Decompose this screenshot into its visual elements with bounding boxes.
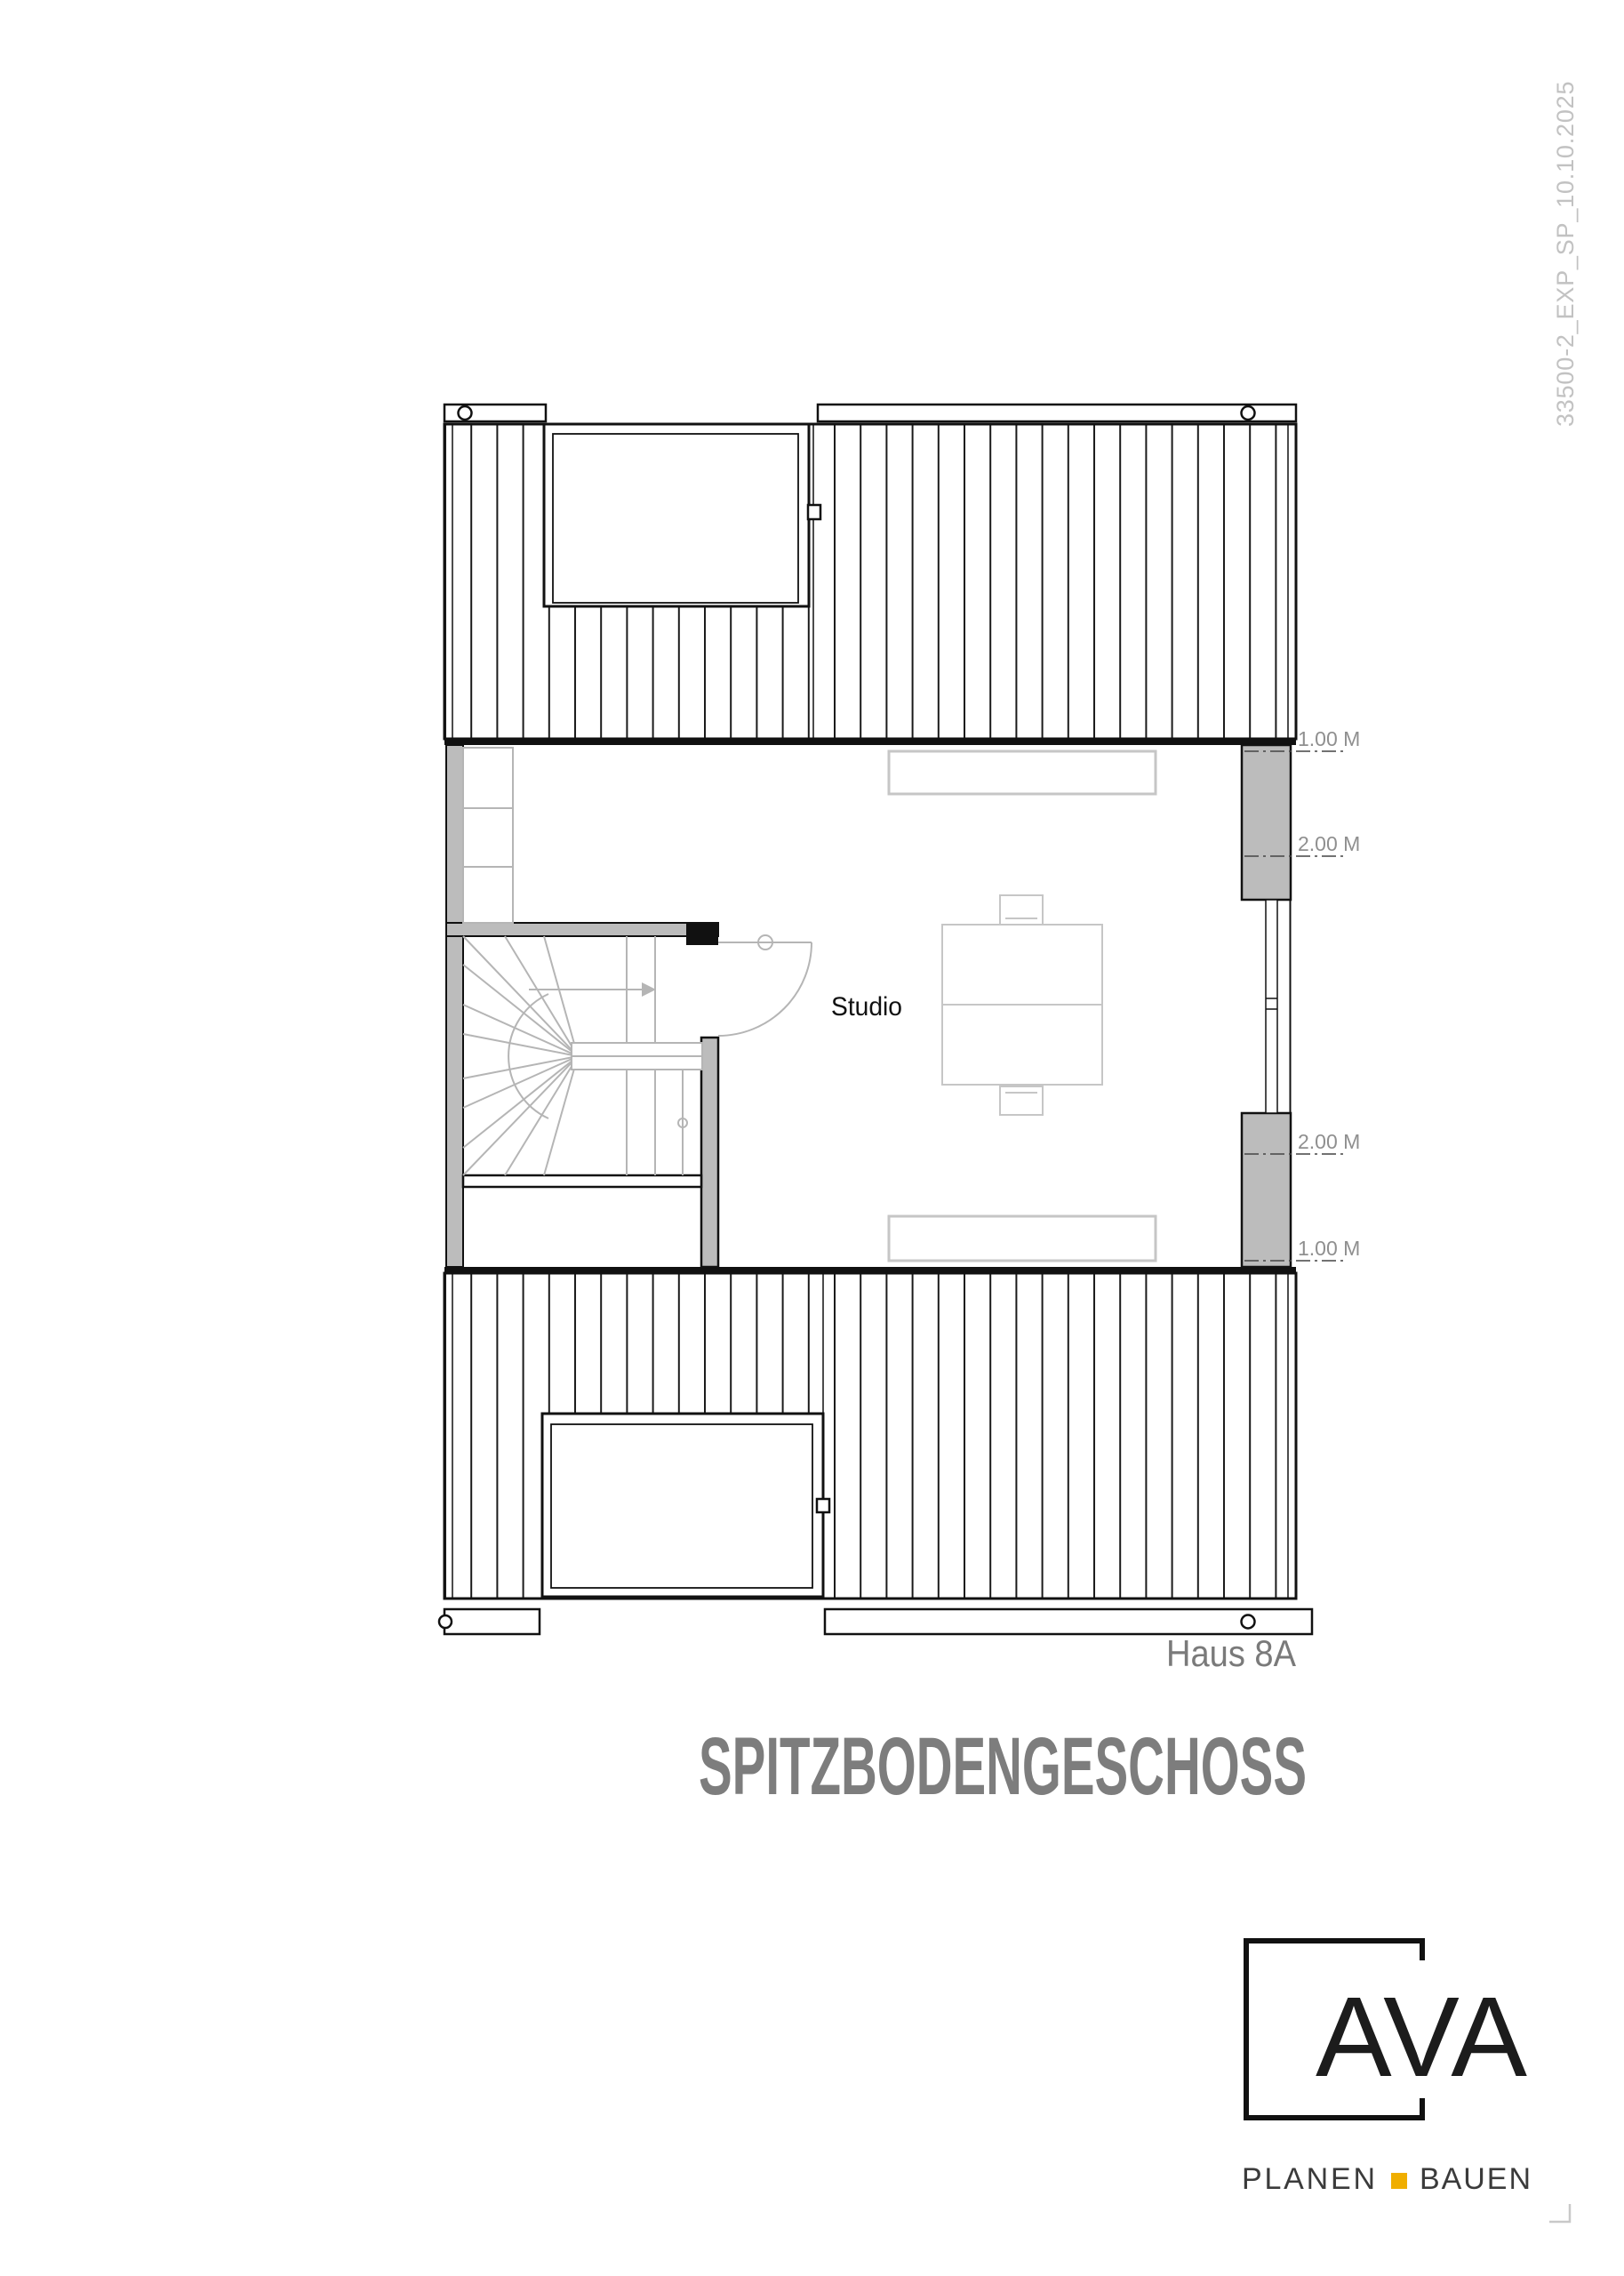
studio-door [718, 935, 812, 1036]
wall-left [446, 745, 463, 1267]
roof-vent-box-icon [817, 1499, 829, 1512]
roof-band-bottom [439, 1273, 1312, 1634]
vent-pipe-icon [459, 406, 472, 420]
sideboard-top [889, 751, 1156, 794]
gutter-end-icon [439, 1615, 452, 1628]
roof-cap-strip-bottom-left [444, 1609, 540, 1634]
logo-tagline-bauen: BAUEN [1420, 2162, 1538, 2196]
stair-walkline-arc [508, 994, 548, 1118]
wall-stair-right [701, 1038, 718, 1267]
chair-bottom [1000, 1086, 1043, 1115]
roof-cap-strip-top-right [818, 405, 1296, 421]
wall-line-bottom [444, 1267, 1296, 1273]
height-label: 2.00 M [1298, 832, 1360, 855]
roof-band-top [444, 405, 1296, 739]
height-label: 2.00 M [1298, 1130, 1360, 1153]
height-label: 1.00 M [1298, 1237, 1360, 1260]
knee-wall-lower [1242, 1113, 1291, 1267]
door-swing-arc [718, 942, 812, 1036]
staircase [463, 936, 702, 1175]
dormer-bottom-inner [551, 1424, 812, 1588]
sideboard-bottom [889, 1216, 1156, 1261]
height-label: 1.00 M [1298, 727, 1360, 750]
floor-plan-page: 1.00 M 2.00 M 2.00 M 1.00 M Studio Haus … [0, 0, 1624, 2276]
table-with-chairs [942, 895, 1102, 1115]
ava-logo: AVA PLANEN BAUEN [1242, 1941, 1538, 2196]
door-frame-post [686, 923, 718, 945]
knee-wall-upper [1242, 745, 1291, 900]
closet-outline [463, 748, 513, 923]
house-label: Haus 8A [1166, 1632, 1296, 1674]
page-title: SPITZBODENGESCHOSS [699, 1721, 1307, 1812]
dormer-top-inner [553, 434, 798, 603]
room-label-studio: Studio [831, 992, 902, 1022]
stair-winder-treads [463, 936, 578, 1175]
wall-stair-top [446, 923, 718, 936]
floor-plan-canvas: 1.00 M 2.00 M 2.00 M 1.00 M Studio Haus … [0, 0, 1624, 2276]
logo-tagline-planen: PLANEN [1242, 2162, 1382, 2196]
wall-line-top [444, 739, 1296, 745]
chair-top [1000, 895, 1043, 925]
built-in-closet [463, 748, 513, 923]
doc-reference-vertical: 33500-2_EXP_SP_10.10.2025 [1552, 80, 1579, 427]
logo-wordmark: AVA [1316, 1974, 1528, 2101]
furniture [889, 751, 1156, 1261]
roof-vent-box-icon [808, 505, 820, 519]
logo-accent-square [1391, 2173, 1407, 2189]
page-corner-mark [1549, 2204, 1570, 2222]
vent-pipe-icon [1242, 406, 1255, 420]
wall-stair-bottom [463, 1175, 701, 1187]
vent-pipe-icon [1242, 1615, 1255, 1629]
window-right [1266, 900, 1277, 1113]
roof-cap-strip-bottom-right [825, 1609, 1312, 1634]
